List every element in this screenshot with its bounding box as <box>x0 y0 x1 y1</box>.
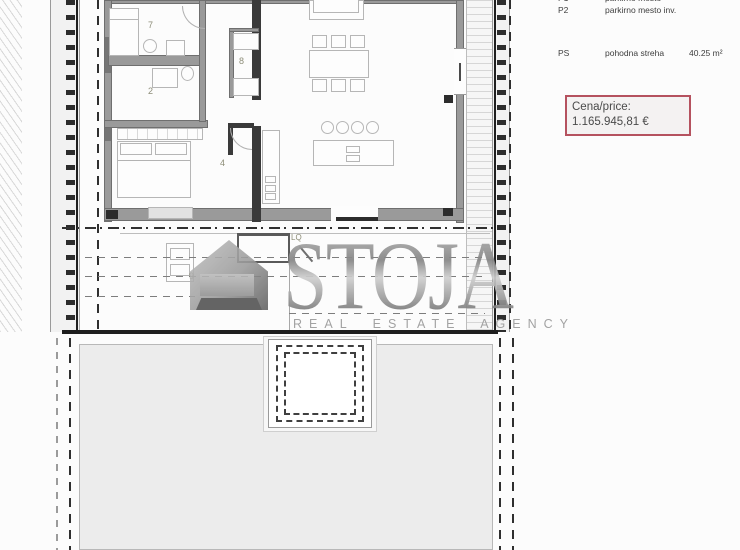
right-wall <box>456 0 464 223</box>
door-handle <box>459 63 461 81</box>
kitchen-island <box>313 140 394 166</box>
appliance-1 <box>265 176 276 183</box>
wall-room7-room2 <box>108 55 205 66</box>
bar-stool-3 <box>351 121 364 134</box>
parking-desc-p2: parkirno mesto inv. <box>605 5 689 15</box>
terrace-dashed-left <box>69 338 71 550</box>
dining-chair-1 <box>312 35 327 48</box>
roof-desc-ps: pohodna streha <box>605 48 689 58</box>
planter-inner-2 <box>170 264 190 276</box>
room-label-4: 4 <box>220 158 225 168</box>
wall-block-corner <box>443 208 453 216</box>
skylight-glass <box>290 357 350 410</box>
roof-area-value: 40.25 m² <box>689 48 723 58</box>
terrace-outer-dashed-left <box>56 338 58 550</box>
dining-table <box>309 50 369 78</box>
cabinet-room8-top <box>233 33 259 50</box>
roof-row-ps: PS pohodna streha 40.25 m² <box>558 48 723 58</box>
island-hob <box>346 155 360 162</box>
wardrobe-bedroom <box>117 128 203 140</box>
price-value: 1.165.945,81 € <box>572 115 684 130</box>
left-roof-edge-band <box>50 0 80 332</box>
stoja-house-body <box>200 274 254 296</box>
floor-plan-canvas: 7 2 8 4 9 LQ STOJA REAL ESTATE AGENCY P1… <box>0 0 740 550</box>
lower-dashed-line-3 <box>85 296 195 297</box>
planter-inner-1 <box>170 248 190 260</box>
terrace-sliding-door <box>454 48 466 95</box>
terrace-outer-dashed-right <box>512 338 514 550</box>
dining-chair-5 <box>331 79 346 92</box>
pillow-right <box>155 143 187 155</box>
pillow-left <box>120 143 152 155</box>
roof-code-ps: PS <box>558 48 605 58</box>
bed-blanket-line <box>118 160 190 161</box>
core-wall-lower <box>252 126 261 222</box>
room-label-2: 2 <box>148 86 153 96</box>
bar-stool-1 <box>321 121 334 134</box>
dining-chair-6 <box>350 79 365 92</box>
chair-room7 <box>143 39 157 53</box>
top-wall <box>104 0 464 4</box>
appliance-2 <box>265 185 276 192</box>
dining-chair-2 <box>331 35 346 48</box>
bar-stool-4 <box>366 121 379 134</box>
wall-room2-bedroom <box>104 120 208 128</box>
appliance-3 <box>265 193 276 200</box>
sofa-seat <box>313 0 359 13</box>
dining-chair-3 <box>350 35 365 48</box>
stoja-logo-text: STOJA <box>283 236 514 316</box>
island-sink <box>346 146 360 153</box>
strip-left-edge <box>79 232 80 331</box>
left-property-dashed-line <box>97 0 99 332</box>
price-label: Cena/price: <box>572 100 684 115</box>
left-edge-rail <box>76 0 78 332</box>
left-roof-hatch <box>0 0 22 332</box>
door-arc-bedroom <box>230 128 252 150</box>
wall-block-left <box>106 210 118 219</box>
dining-chair-4 <box>312 79 327 92</box>
chair-room2 <box>181 66 194 81</box>
stoja-house-base <box>196 298 262 310</box>
room8-top-wall <box>229 28 259 32</box>
parking-code-p1: P1 <box>558 0 605 3</box>
room-label-8: 8 <box>239 56 244 66</box>
parking-code-p2: P2 <box>558 5 605 15</box>
desk-room7 <box>166 40 185 56</box>
parking-row-p1: P1 parkirno mesto <box>558 0 689 3</box>
sideboard-bottom-wall <box>148 207 193 219</box>
wall-block-right <box>444 95 453 103</box>
room-label-7: 7 <box>148 20 153 30</box>
bed-room7-pillow <box>109 8 139 20</box>
door-arc-room7 <box>182 6 205 29</box>
stoja-tagline: REAL ESTATE AGENCY <box>293 317 575 331</box>
price-box: Cena/price: 1.165.945,81 € <box>565 95 691 136</box>
parking-row-p2: P2 parkirno mesto inv. <box>558 5 689 15</box>
parking-desc-p1: parkirno mesto <box>605 0 689 3</box>
bar-stool-2 <box>336 121 349 134</box>
left-tile-ticks <box>66 0 75 332</box>
cabinet-room8-bottom <box>233 78 259 96</box>
terrace-dashed-right <box>499 338 501 550</box>
desk-room2 <box>152 68 178 88</box>
